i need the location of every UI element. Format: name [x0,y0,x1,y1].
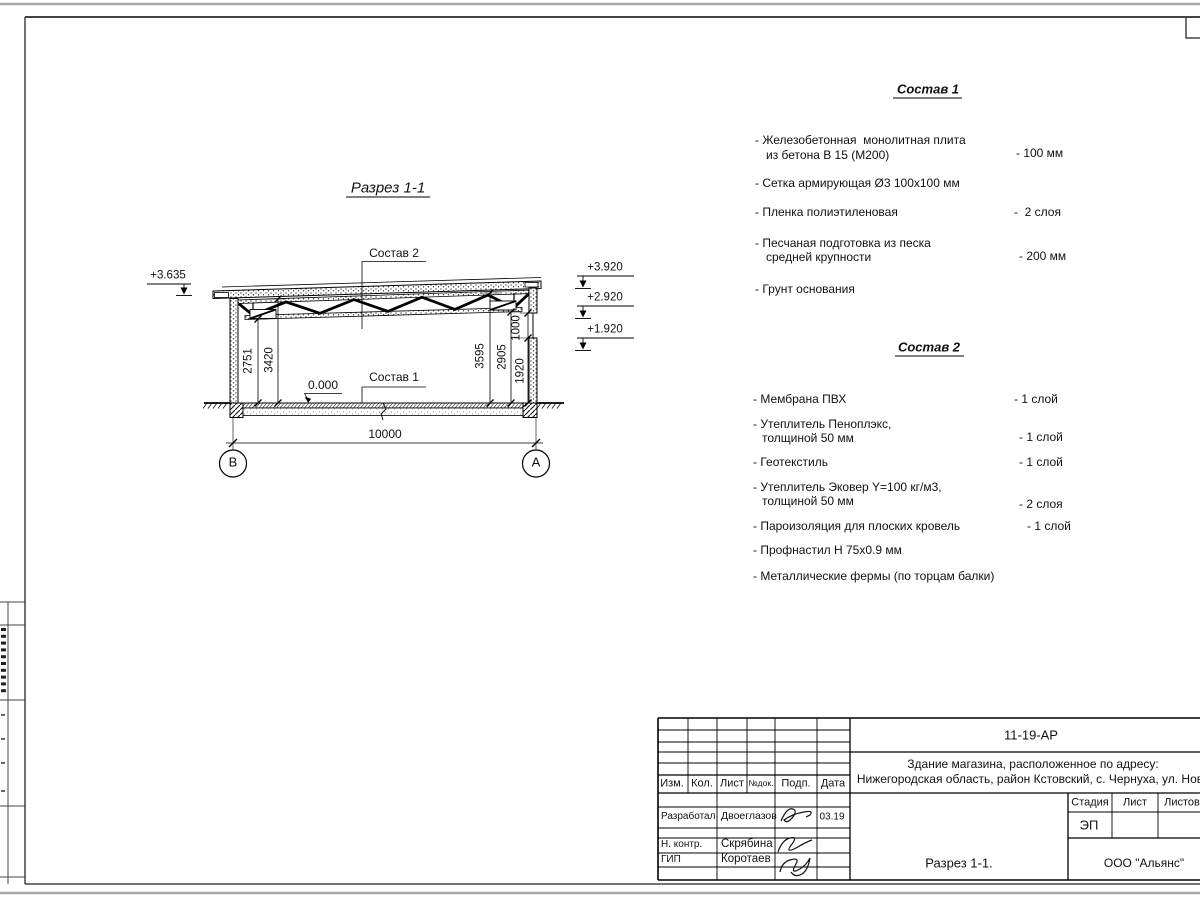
tb-col-ndok: №док. [749,779,774,789]
sostav2-heading: Состав 2 [898,341,960,356]
tb-list-col: Лист [1123,797,1147,810]
dim-right-2905: 2905 [496,344,509,370]
left-strip [0,602,25,884]
sostav1-item-4-line2: средней крупности [766,251,871,265]
tb-col-podp: Подп. [781,778,810,791]
tb-col-data: Дата [821,778,845,791]
tb-stage-value: ЭП [1080,819,1099,834]
sostav2-item-3-value: - 1 слой [1019,456,1063,470]
sostav2-item-5-value: - 1 слой [1027,520,1071,534]
section-floor [203,403,564,420]
sostav2-item-2-line2: толщиной 50 мм [762,432,854,446]
elevation-left: +3.635 [150,269,186,282]
sheet: Разрез 1-1 Состав 2 Состав 1 0.000 +3.63… [0,0,1200,900]
tb-col-izm: Изм. [660,778,684,791]
sostav2-item-6-line1: - Профнастил Н 75х0.9 мм [753,544,902,558]
dim-left-3420: 3420 [263,347,276,373]
sostav1-item-2-line1: - Сетка армирующая Ø3 100x100 мм [755,177,960,191]
tb-role-gip: ГИП [661,854,681,866]
tb-company: ООО "Альянс" [1104,857,1184,871]
signatures [778,809,812,876]
sostav2-ref-label: Состав 2 [369,247,419,261]
sostav2-item-2-value: - 1 слой [1019,431,1063,445]
zero-level-mark: 0.000 [308,379,338,393]
sostav1-item-5-line1: - Грунт основания [755,283,855,297]
tb-name-korotaev: Коротаев [721,853,771,866]
axis-label-b: В [229,456,238,471]
sostav1-ref-label: Состав 1 [369,371,419,385]
sostav2-item-4-line2: толщиной 50 мм [762,495,854,509]
signature-gip [778,838,812,876]
sostav1-item-1-value: - 100 мм [1016,147,1063,161]
signature-razrabotal [781,809,811,822]
tb-role-razrabotal: Разработал [661,811,715,823]
elevation-right-3: +1.920 [587,323,623,336]
tb-listov-col: Листов [1164,797,1200,810]
sostav2-item-4-value: - 2 слоя [1019,498,1063,512]
dim-overall-10000: 10000 [368,428,401,442]
tb-sheet-title: Разрез 1-1. [925,857,992,872]
sostav1-item-1-line2: из бетона В 15 (М200) [766,149,889,163]
dim-right-3595: 3595 [474,343,487,369]
sostav1-item-3-line1: - Пленка полиэтиленовая [755,206,898,220]
tb-project-line1: Здание магазина, расположенное по адресу… [907,758,1158,772]
tb-doc-number: 11-19-АР [1004,729,1058,744]
sostav1-item-4-value: - 200 мм [1019,250,1066,264]
tb-project-line2: Нижегородская область, район Кстовский, … [857,773,1200,787]
sostav1-item-1-line1: - Железобетонная монолитная плита [755,134,966,148]
sostav1-item-3-value: - 2 слоя [1014,206,1061,220]
tb-col-list: Лист [720,778,744,791]
tb-name-skryabina: Скрябина [721,838,773,851]
sostav2-item-5-line1: - Пароизоляция для плоских кровель [753,520,960,534]
sostav2-item-1-value: - 1 слой [1014,393,1058,407]
sostav2-item-2-line1: - Утеплитель Пеноплэкс, [753,418,891,432]
axis-label-a: А [532,456,541,471]
tb-date-0319: 03.19 [819,811,844,823]
dim-right-1920: 1920 [514,358,527,384]
section-title: Разрез 1-1 [351,179,425,196]
elevation-right-2: +2.920 [587,291,623,304]
dim-left-2751: 2751 [242,348,255,374]
dim-right-1000: 1000 [510,315,523,341]
tb-name-dvoeglazov: Двоеглазов [721,810,777,822]
sostav1-item-4-line1: - Песчаная подготовка из песка [755,237,931,251]
elevation-right-1: +3.920 [587,261,623,274]
tb-role-nkontr: Н. контр. [661,839,702,851]
sostav2-item-4-line1: - Утеплитель Эковер Y=100 кг/м3, [753,481,942,495]
sostav1-heading: Состав 1 [897,83,959,98]
tb-col-kol: Кол. [691,778,713,791]
tb-stage-col: Стадия [1071,797,1109,810]
sostav2-item-7-line1: - Металлические фермы (по торцам балки) [753,570,994,584]
sostav2-item-3-line1: - Геотекстиль [753,456,828,470]
sostav2-item-1-line1: - Мембрана ПВХ [753,393,846,407]
